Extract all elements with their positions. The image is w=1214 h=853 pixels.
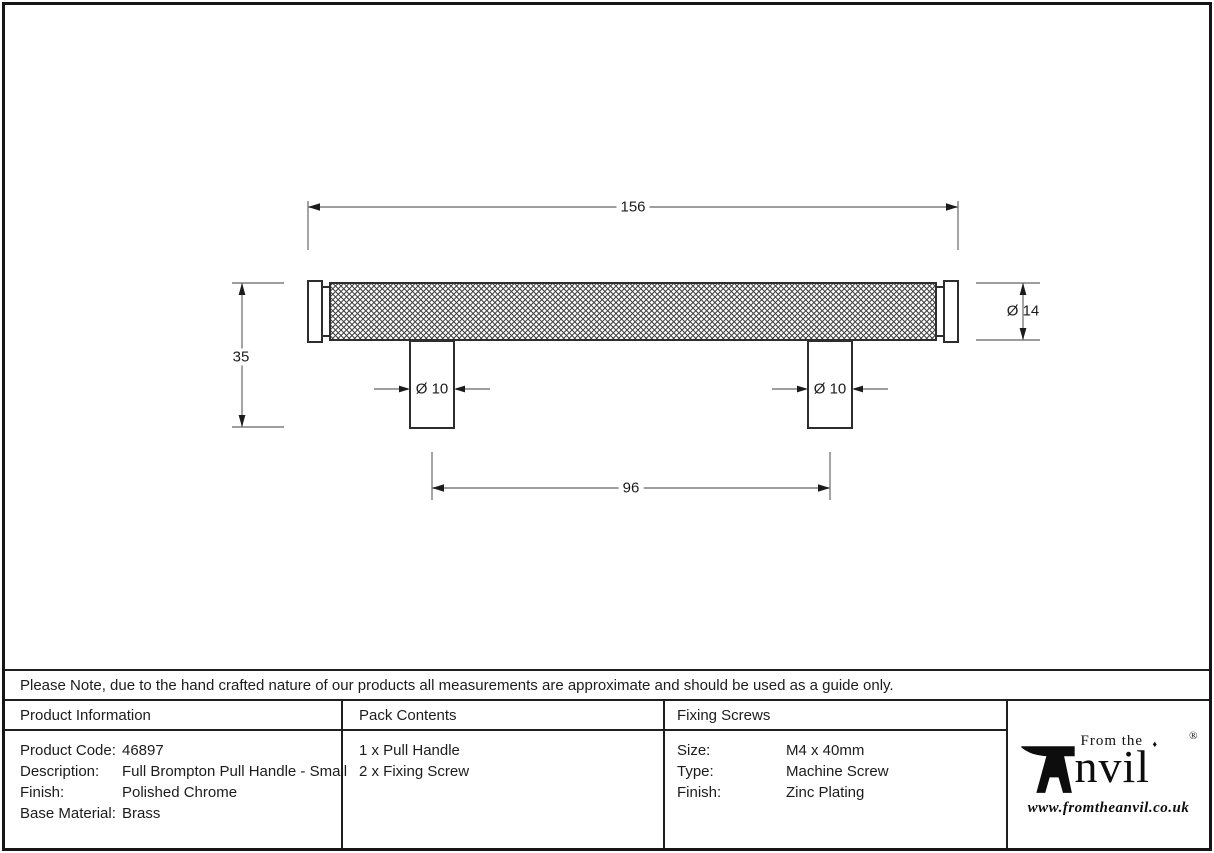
- description-label: Description:: [20, 761, 122, 782]
- product-information-header: Product Information: [5, 701, 341, 731]
- fixing-screws-rows: Size: M4 x 40mm Type: Machine Screw Fini…: [665, 740, 1006, 803]
- centres-dimension-label: 96: [619, 480, 644, 497]
- finish-value: Polished Chrome: [122, 782, 347, 803]
- logo-diamond-icon: ♦: [1153, 739, 1158, 749]
- length-dimension-label: 156: [616, 199, 649, 216]
- pack-contents-header: Pack Contents: [343, 701, 663, 731]
- measurement-note: Please Note, due to the hand crafted nat…: [5, 669, 1209, 701]
- screw-type-label: Type:: [677, 761, 786, 782]
- post-diameter-label-right: Ø 10: [814, 381, 847, 398]
- registered-trademark-symbol: ®: [1189, 730, 1197, 742]
- height-dimension-label: 35: [229, 349, 254, 366]
- knurled-handle-bar: [330, 283, 936, 340]
- from-the-anvil-logo: From the ♦ ® nvil www.fromtheanvil.co.uk: [1020, 732, 1198, 817]
- logo-website-url: www.fromtheanvil.co.uk: [1028, 800, 1190, 817]
- product-code-label: Product Code:: [20, 740, 122, 761]
- description-value: Full Brompton Pull Handle - Small: [122, 761, 347, 782]
- screw-type-value: Machine Screw: [786, 761, 1006, 782]
- pull-handle-technical-drawing: 156 35 Ø 10 Ø 10 Ø 14 96: [0, 0, 1214, 669]
- fixing-screws-header: Fixing Screws: [665, 701, 1006, 731]
- end-diameter-label: Ø 14: [1007, 303, 1040, 320]
- finish-label: Finish:: [20, 782, 122, 803]
- base-material-value: Brass: [122, 803, 347, 824]
- pack-contents-item: 2 x Fixing Screw: [359, 761, 663, 782]
- pack-contents-item: 1 x Pull Handle: [359, 740, 663, 761]
- fixing-screws-column: Fixing Screws Size: M4 x 40mm Type: Mach…: [665, 701, 1008, 848]
- anvil-icon: [1020, 744, 1076, 794]
- product-spec-sheet: 156 35 Ø 10 Ø 10 Ø 14 96 Please Note, du…: [0, 0, 1214, 853]
- logo-wordmark: nvil: [1075, 744, 1151, 790]
- brand-logo-cell: From the ♦ ® nvil www.fromtheanvil.co.uk: [1008, 701, 1209, 848]
- product-code-value: 46897: [122, 740, 347, 761]
- measurement-note-text: Please Note, due to the hand crafted nat…: [20, 677, 894, 694]
- base-material-label: Base Material:: [20, 803, 122, 824]
- screw-size-label: Size:: [677, 740, 786, 761]
- screw-finish-value: Zinc Plating: [786, 782, 1006, 803]
- product-information-rows: Product Code: 46897 Description: Full Br…: [5, 740, 341, 824]
- post-diameter-label-left: Ø 10: [416, 381, 449, 398]
- pack-contents-list: 1 x Pull Handle 2 x Fixing Screw: [343, 731, 663, 782]
- fixing-posts: [410, 341, 852, 428]
- product-information-column: Product Information Product Code: 46897 …: [5, 701, 343, 848]
- drawing-canvas: [0, 0, 1214, 669]
- pack-contents-column: Pack Contents 1 x Pull Handle 2 x Fixing…: [343, 701, 665, 848]
- spec-table: Product Information Product Code: 46897 …: [5, 701, 1209, 848]
- screw-finish-label: Finish:: [677, 782, 786, 803]
- screw-size-value: M4 x 40mm: [786, 740, 1006, 761]
